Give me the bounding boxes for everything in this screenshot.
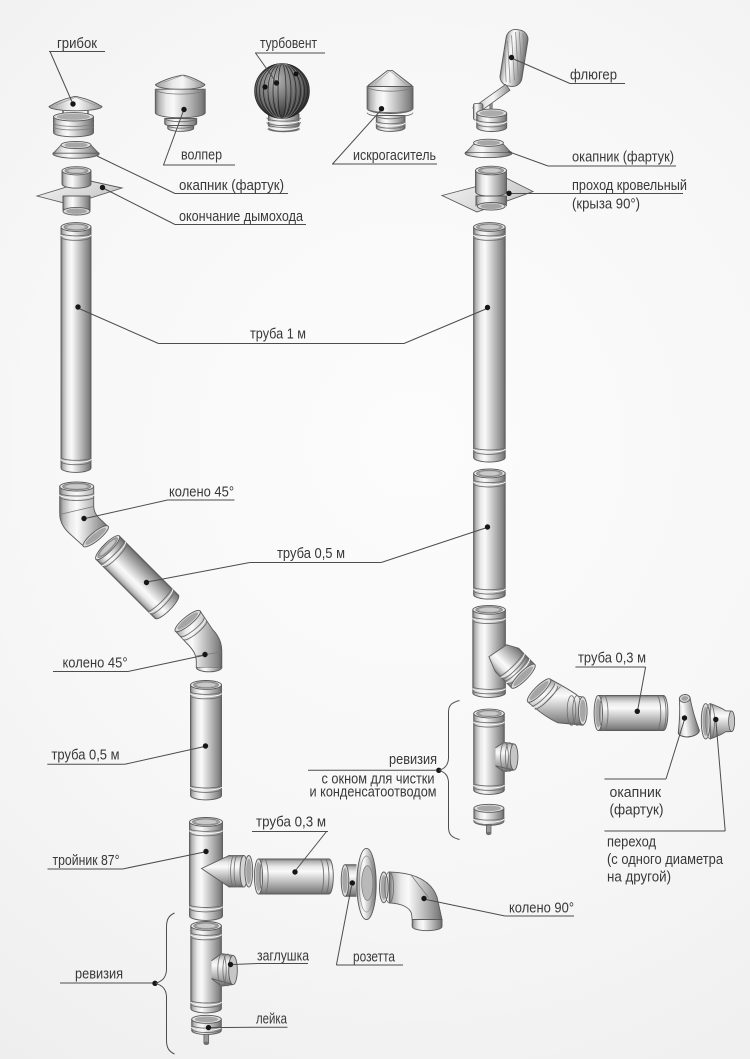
svg-text:турбовент: турбовент	[260, 35, 317, 52]
svg-text:(крыза 90°): (крыза 90°)	[572, 196, 640, 213]
svg-text:окапник (фартук): окапник (фартук)	[572, 149, 674, 166]
svg-text:труба 0,3 м: труба 0,3 м	[578, 650, 646, 667]
svg-text:труба 0,5 м: труба 0,5 м	[277, 545, 345, 562]
svg-text:труба 1 м: труба 1 м	[250, 326, 306, 343]
svg-text:волпер: волпер	[181, 147, 222, 164]
svg-text:труба 0,3 м: труба 0,3 м	[256, 814, 326, 831]
svg-text:колено 45°: колено 45°	[63, 655, 128, 672]
svg-text:(с одного диаметра: (с одного диаметра	[607, 851, 724, 868]
svg-text:труба 0,5 м: труба 0,5 м	[52, 747, 120, 764]
svg-text:грибок: грибок	[57, 35, 97, 52]
svg-text:окапник: окапник	[610, 784, 662, 801]
svg-text:окончание дымохода: окончание дымохода	[179, 208, 304, 225]
svg-text:окапник (фартук): окапник (фартук)	[179, 177, 284, 194]
svg-text:искрогаситель: искрогаситель	[353, 147, 436, 164]
svg-text:тройник 87°: тройник 87°	[53, 852, 120, 869]
svg-text:и конденсатоотводом: и конденсатоотводом	[310, 784, 437, 801]
svg-text:колено 90°: колено 90°	[509, 900, 574, 917]
svg-text:на другой): на другой)	[607, 869, 671, 886]
svg-text:флюгер: флюгер	[570, 67, 617, 84]
svg-text:заглушка: заглушка	[257, 948, 310, 965]
svg-text:ревизия: ревизия	[389, 751, 437, 768]
svg-text:(фартук): (фартук)	[610, 802, 664, 819]
svg-text:розетта: розетта	[353, 949, 396, 966]
svg-text:переход: переход	[607, 834, 656, 851]
svg-text:проход кровельный: проход кровельный	[572, 177, 687, 194]
svg-text:ревизия: ревизия	[75, 966, 123, 983]
svg-text:колено 45°: колено 45°	[169, 484, 234, 501]
svg-text:лейка: лейка	[256, 1011, 287, 1028]
